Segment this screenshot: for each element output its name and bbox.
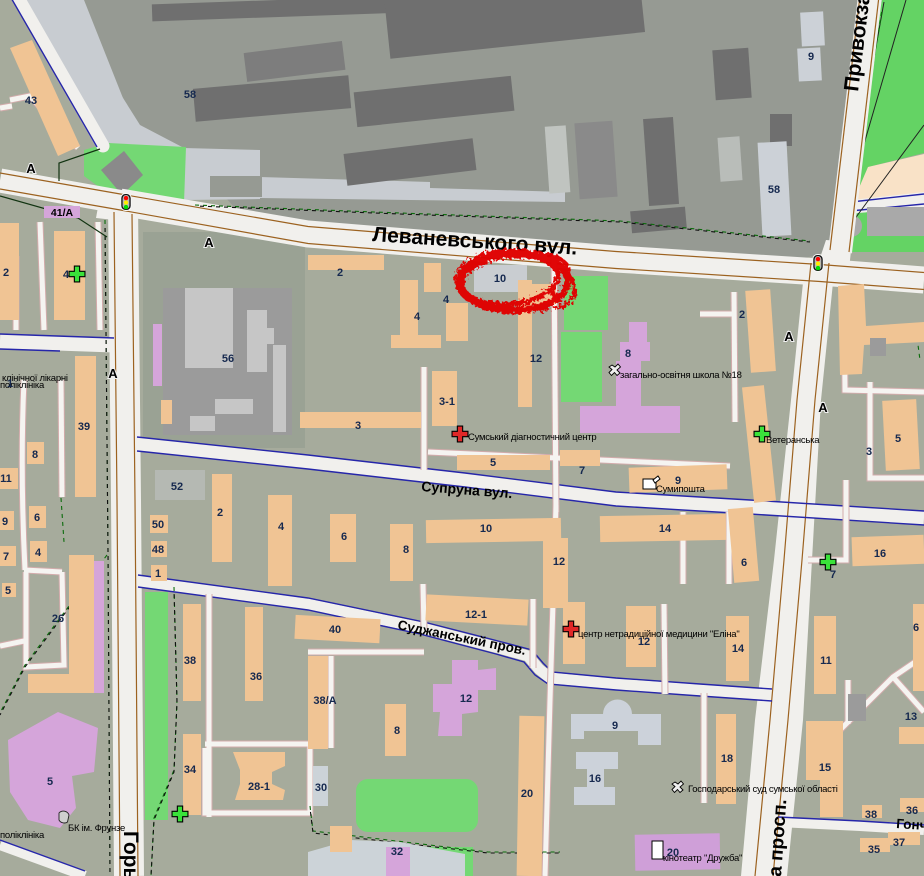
- svg-text:40: 40: [329, 624, 341, 636]
- svg-text:38: 38: [184, 655, 196, 667]
- svg-text:7: 7: [830, 569, 836, 581]
- svg-text:2: 2: [739, 309, 745, 321]
- svg-text:58: 58: [184, 89, 196, 101]
- svg-text:12: 12: [553, 556, 565, 568]
- svg-text:3-1: 3-1: [439, 396, 455, 408]
- svg-text:3: 3: [866, 446, 872, 458]
- svg-text:9: 9: [612, 720, 618, 732]
- svg-text:9: 9: [808, 51, 814, 63]
- svg-text:8: 8: [394, 725, 400, 737]
- svg-text:36: 36: [250, 671, 262, 683]
- svg-text:A: A: [818, 400, 828, 415]
- svg-text:2: 2: [337, 267, 343, 279]
- svg-text:12: 12: [460, 693, 472, 705]
- svg-text:5: 5: [490, 457, 496, 469]
- svg-text:11: 11: [820, 655, 832, 667]
- svg-text:2: 2: [3, 267, 9, 279]
- svg-text:2: 2: [217, 507, 223, 519]
- svg-text:52: 52: [171, 481, 183, 493]
- svg-text:32: 32: [391, 846, 403, 858]
- svg-text:6: 6: [741, 557, 747, 569]
- svg-text:15: 15: [819, 762, 831, 774]
- svg-text:48: 48: [152, 544, 164, 556]
- svg-text:центр нетрадиційної медицини ": центр нетрадиційної медицини "Еліна": [578, 629, 739, 640]
- svg-text:5: 5: [5, 585, 11, 597]
- svg-text:кінотеатр "Дружба": кінотеатр "Дружба": [663, 853, 742, 864]
- svg-text:1: 1: [7, 378, 13, 390]
- svg-text:50: 50: [152, 519, 164, 531]
- svg-text:A: A: [108, 366, 118, 381]
- svg-text:58: 58: [768, 184, 780, 196]
- svg-text:A: A: [784, 329, 794, 344]
- svg-text:8: 8: [625, 348, 631, 360]
- svg-text:12: 12: [530, 353, 542, 365]
- svg-text:8: 8: [32, 449, 38, 461]
- svg-text:26: 26: [52, 613, 64, 625]
- svg-text:11: 11: [0, 473, 12, 485]
- svg-text:16: 16: [589, 773, 601, 785]
- svg-text:поліклініка: поліклініка: [0, 830, 45, 841]
- svg-text:10: 10: [494, 273, 506, 285]
- svg-text:43: 43: [25, 95, 37, 107]
- svg-text:3: 3: [355, 420, 361, 432]
- svg-text:14: 14: [659, 523, 672, 535]
- svg-text:35: 35: [868, 844, 880, 856]
- svg-text:Горького вул.: Горького вул.: [119, 831, 142, 876]
- svg-text:6: 6: [34, 512, 40, 524]
- svg-text:38/А: 38/А: [313, 695, 336, 707]
- svg-text:5: 5: [895, 433, 901, 445]
- svg-text:8: 8: [403, 544, 409, 556]
- svg-text:4: 4: [414, 311, 421, 323]
- svg-text:4: 4: [443, 294, 450, 306]
- svg-text:1: 1: [155, 568, 161, 580]
- svg-text:7: 7: [579, 465, 585, 477]
- svg-text:7: 7: [3, 551, 9, 563]
- svg-text:A: A: [26, 161, 36, 176]
- svg-text:38: 38: [865, 809, 877, 821]
- svg-text:10: 10: [480, 523, 492, 535]
- svg-text:9: 9: [2, 516, 8, 528]
- svg-text:14: 14: [732, 643, 745, 655]
- svg-text:18: 18: [721, 753, 733, 765]
- svg-text:6: 6: [341, 531, 347, 543]
- svg-text:20: 20: [521, 788, 533, 800]
- svg-text:Сумипошта: Сумипошта: [656, 484, 706, 495]
- svg-text:6: 6: [913, 622, 919, 634]
- svg-text:34: 34: [184, 764, 197, 776]
- svg-text:Ветеранська: Ветеранська: [766, 435, 820, 446]
- svg-text:28-1: 28-1: [248, 781, 270, 793]
- svg-text:41/А: 41/А: [51, 207, 74, 219]
- svg-text:5: 5: [47, 776, 53, 788]
- svg-text:36: 36: [906, 805, 918, 817]
- svg-text:13: 13: [905, 711, 917, 723]
- svg-text:37: 37: [893, 837, 905, 849]
- svg-text:12-1: 12-1: [465, 609, 487, 621]
- svg-text:39: 39: [78, 421, 90, 433]
- svg-text:30: 30: [315, 782, 327, 794]
- svg-text:4: 4: [35, 547, 42, 559]
- svg-text:БК ім. Фрунзе: БК ім. Фрунзе: [68, 823, 125, 834]
- svg-text:16: 16: [874, 548, 886, 560]
- svg-text:56: 56: [222, 353, 234, 365]
- svg-text:Господарський суд сумської обл: Господарський суд сумської області: [688, 784, 838, 795]
- svg-text:4: 4: [278, 521, 285, 533]
- svg-text:Сумський діагностичний центр: Сумський діагностичний центр: [468, 432, 596, 443]
- svg-text:A: A: [204, 235, 214, 250]
- svg-text:загально-освітня школа №18: загально-освітня школа №18: [620, 370, 742, 381]
